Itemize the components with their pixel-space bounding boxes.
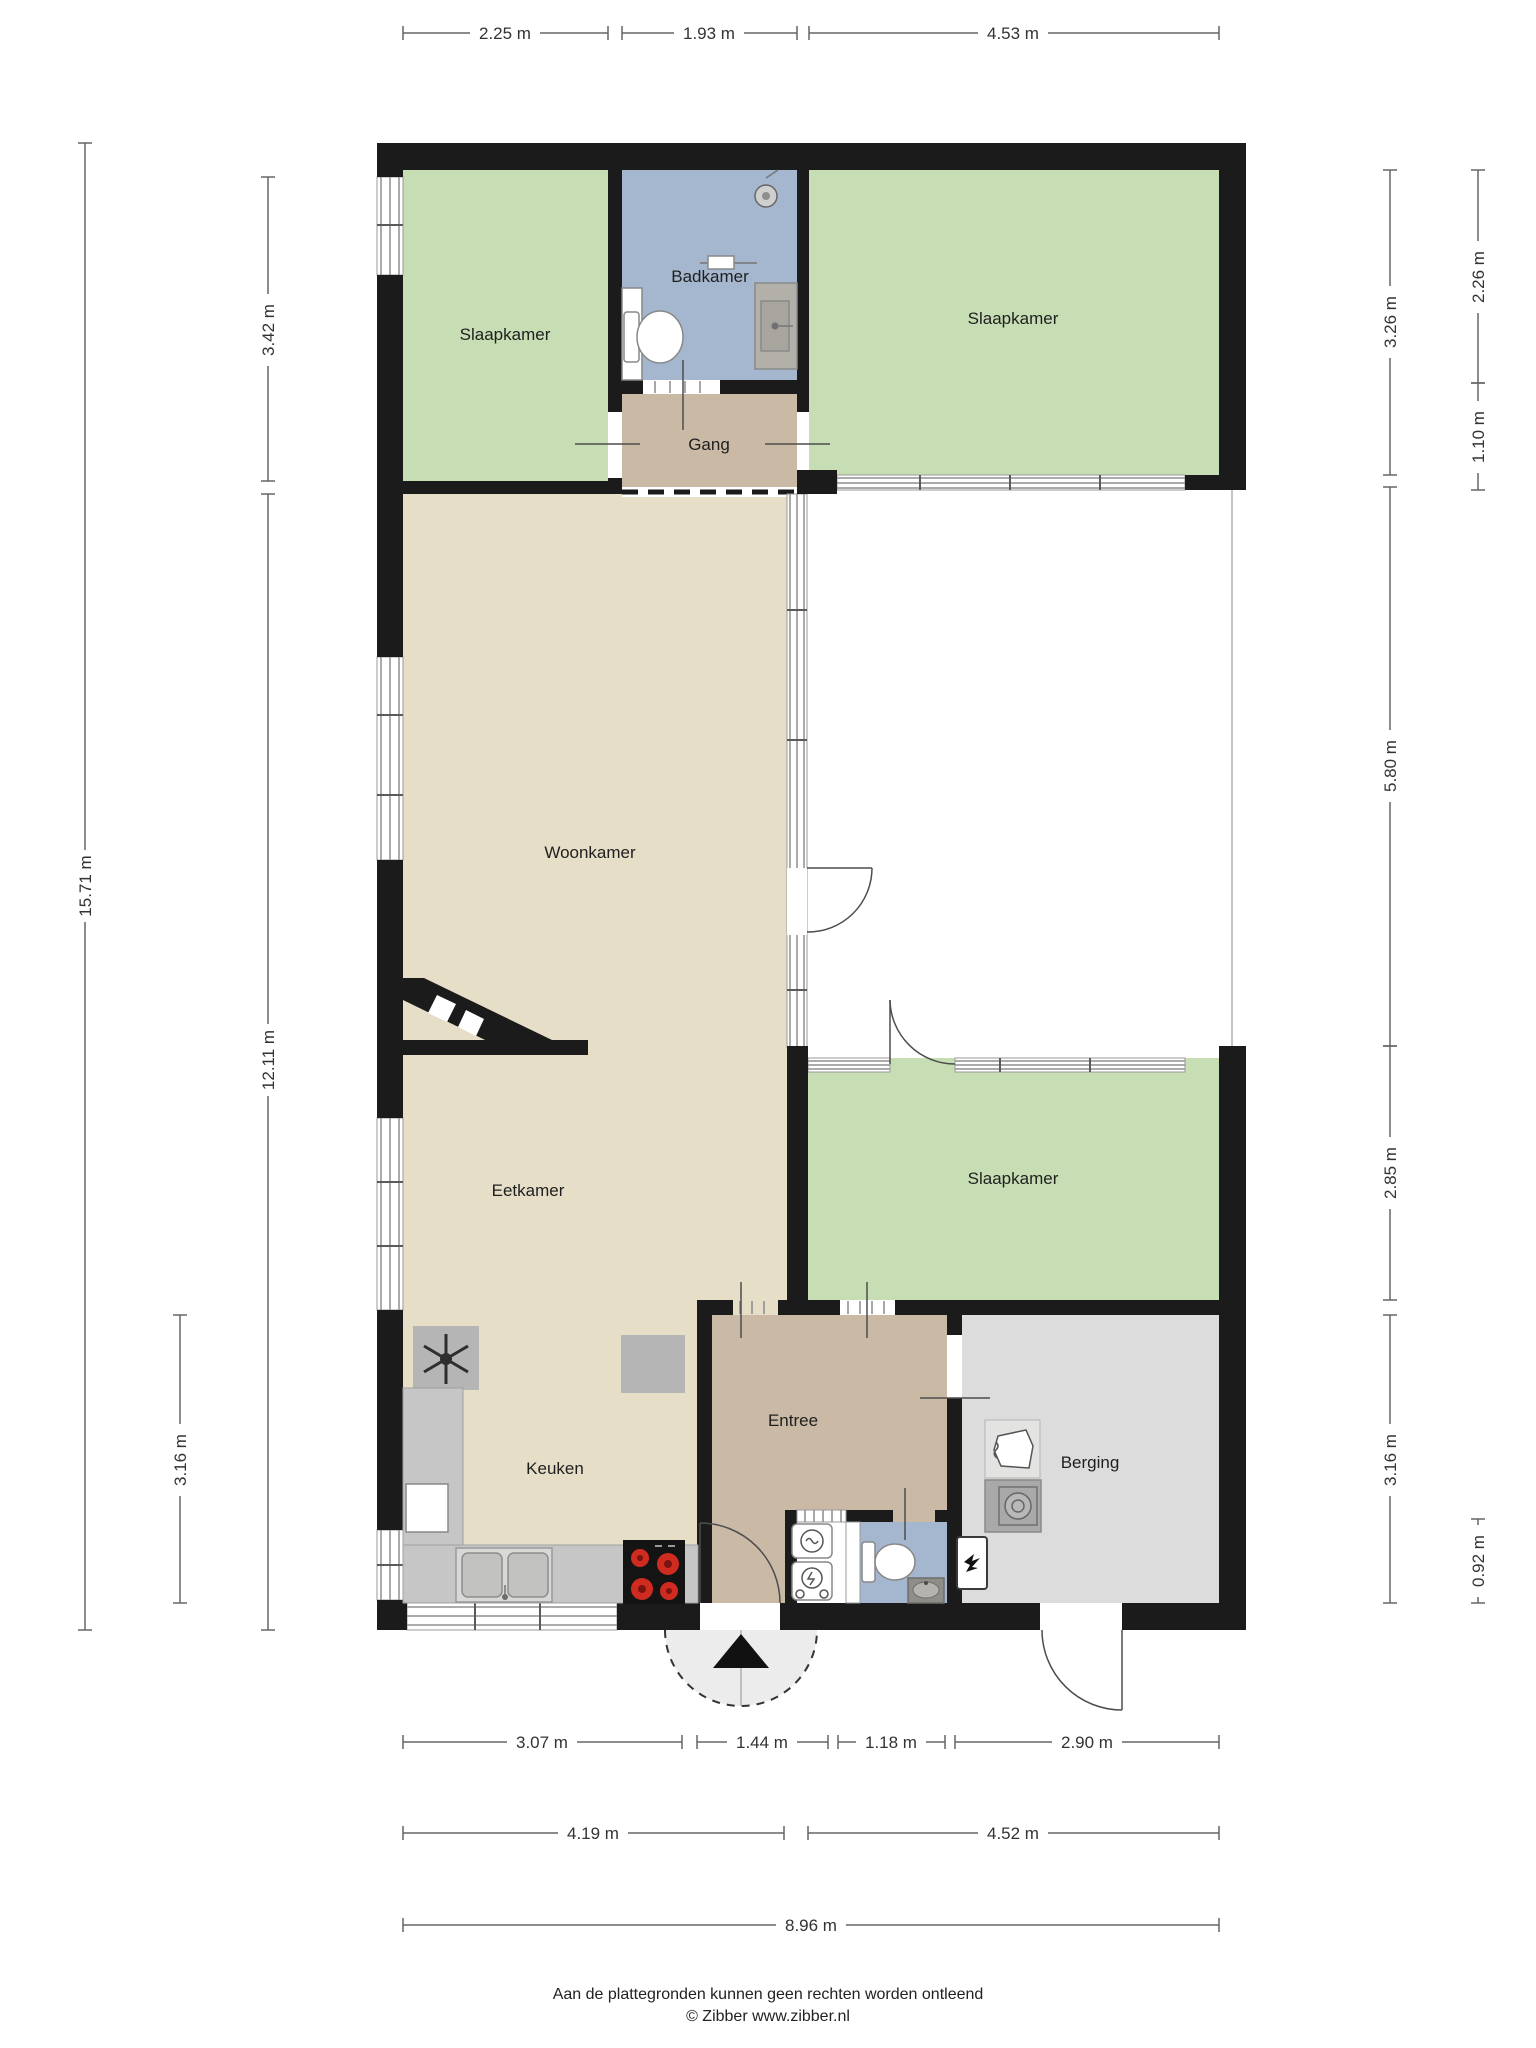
window-glass-wall bbox=[787, 494, 807, 1047]
room-label-keuken: Keuken bbox=[526, 1459, 584, 1478]
room-label-slaapkamer-tr: Slaapkamer bbox=[968, 309, 1059, 328]
wall-toilet-top-seg bbox=[935, 1510, 947, 1522]
kitchen-sink-icon bbox=[456, 1548, 552, 1602]
wall-gang-left bbox=[608, 478, 622, 494]
room-label-badkamer: Badkamer bbox=[671, 267, 749, 286]
wall-band-block bbox=[809, 475, 837, 490]
dim-label: 4.53 m bbox=[987, 24, 1039, 43]
footer: Aan de plattegronden kunnen geen rechten… bbox=[553, 1986, 984, 2025]
dim-left-3: 3.16 m bbox=[168, 1315, 192, 1603]
window-slaapkamer-br-band bbox=[808, 1058, 1185, 1072]
dim-bottom2-1: 4.52 m bbox=[808, 1822, 1219, 1844]
dim-top-0: 2.25 m bbox=[403, 22, 608, 44]
wall-outer-left-seg bbox=[377, 143, 403, 177]
slaapkamer-br-door-arc bbox=[890, 1000, 955, 1064]
footer-disclaimer: Aan de plattegronden kunnen geen rechten… bbox=[553, 1986, 984, 2003]
wall-outer-left-seg bbox=[377, 860, 403, 1118]
floorplan-page: 2.25 m 1.93 m 4.53 m 15.71 m 3.42 m bbox=[0, 0, 1536, 2048]
dim-bottom1-0: 3.07 m bbox=[403, 1731, 682, 1753]
wall-slaapkamer-tl-bottom bbox=[395, 481, 608, 494]
kitchen-appliance-icon bbox=[406, 1484, 448, 1532]
electric-meter-icon bbox=[792, 1562, 832, 1600]
wall-entree-top-seg bbox=[895, 1300, 1246, 1315]
room-label-berging: Berging bbox=[1061, 1453, 1120, 1472]
dim-label: 8.96 m bbox=[785, 1916, 837, 1935]
window-keuken-bottom bbox=[407, 1603, 617, 1630]
room-label-gang: Gang bbox=[688, 435, 730, 454]
wall-berging-left-seg bbox=[947, 1315, 962, 1335]
dim-right-outer-0: 2.26 m bbox=[1466, 170, 1490, 383]
dim-label: 2.25 m bbox=[479, 24, 531, 43]
dim-right-inner-0: 3.26 m bbox=[1378, 170, 1402, 475]
glass-wall-door-gap bbox=[787, 868, 807, 935]
cooktop-icon bbox=[623, 1540, 685, 1604]
toilet-icon bbox=[624, 311, 683, 363]
boiler-icon bbox=[957, 1537, 987, 1589]
window-eetkamer bbox=[377, 1118, 403, 1310]
wall-entree-top-seg bbox=[778, 1300, 840, 1315]
window-keuken-left bbox=[377, 1530, 403, 1600]
wall-slaapkamer-badkamer bbox=[608, 170, 622, 380]
wall-badkamer-bottom bbox=[720, 380, 809, 394]
meterkast-fixtures bbox=[792, 1524, 832, 1600]
dim-label: 1.93 m bbox=[683, 24, 735, 43]
dim-label: 5.80 m bbox=[1381, 740, 1400, 792]
meterkast-louvre-door bbox=[797, 1510, 846, 1522]
wall-outer-bottom-seg bbox=[617, 1603, 700, 1630]
dim-label: 3.16 m bbox=[1381, 1434, 1400, 1486]
dim-label: 2.85 m bbox=[1381, 1147, 1400, 1199]
wall-toilet-top-seg bbox=[846, 1510, 893, 1522]
room-label-woonkamer: Woonkamer bbox=[544, 843, 636, 862]
dim-label: 1.44 m bbox=[736, 1733, 788, 1752]
entrance-marker bbox=[665, 1630, 817, 1706]
wall-badkamer-slaapkamer bbox=[797, 170, 809, 380]
dim-label: 1.18 m bbox=[865, 1733, 917, 1752]
room-label-eetkamer: Eetkamer bbox=[492, 1181, 565, 1200]
dim-right-inner-1: 5.80 m bbox=[1378, 487, 1402, 1046]
wall-badkamer-bottom bbox=[608, 380, 643, 394]
wall-eetkamer-slaapkamer bbox=[787, 1046, 808, 1315]
gang-open-boundary bbox=[622, 487, 797, 497]
dim-label: 1.10 m bbox=[1469, 411, 1488, 463]
wall-gang-right bbox=[797, 394, 809, 412]
window-slaapkamer-tr-band bbox=[837, 475, 1185, 490]
room-label-slaapkamer-br: Slaapkamer bbox=[968, 1169, 1059, 1188]
kitchen-cabinet-block bbox=[621, 1335, 685, 1393]
dim-label: 2.90 m bbox=[1061, 1733, 1113, 1752]
dim-left-2: 12.11 m bbox=[256, 494, 280, 1630]
dim-label: 3.16 m bbox=[171, 1434, 190, 1486]
window-woonkamer bbox=[377, 657, 403, 860]
washing-machine-icon bbox=[985, 1480, 1041, 1532]
floorplan-canvas: 2.25 m 1.93 m 4.53 m 15.71 m 3.42 m bbox=[0, 0, 1536, 2048]
dim-label: 12.11 m bbox=[259, 1030, 278, 1090]
wall-band-block bbox=[1185, 475, 1219, 490]
dim-right-inner-2: 2.85 m bbox=[1378, 1046, 1402, 1300]
toilet-icon bbox=[862, 1542, 915, 1582]
wall-outer-bottom-seg bbox=[377, 1603, 407, 1630]
wall-outer-left-seg bbox=[377, 275, 403, 657]
dim-bottom3-0: 8.96 m bbox=[403, 1914, 1219, 1936]
dim-bottom1-3: 2.90 m bbox=[955, 1731, 1219, 1753]
wall-outer-right-seg bbox=[1219, 143, 1246, 490]
dim-label: 3.07 m bbox=[516, 1733, 568, 1752]
berging-exterior-door-arc bbox=[1042, 1630, 1122, 1710]
laundry-basket-icon bbox=[985, 1420, 1040, 1478]
dim-right-inner-3: 3.16 m bbox=[1378, 1315, 1402, 1603]
wall-outer-top bbox=[377, 143, 1246, 170]
dim-label: 0.92 m bbox=[1469, 1535, 1488, 1587]
dim-label: 3.42 m bbox=[259, 304, 278, 356]
window-slaapkamer-tl bbox=[377, 177, 403, 275]
wall-entree-top-seg bbox=[697, 1300, 733, 1315]
room-label-slaapkamer-tl: Slaapkamer bbox=[460, 325, 551, 344]
wall-woonkamer-eetkamer-stub bbox=[403, 1040, 588, 1055]
water-meter-icon bbox=[792, 1524, 832, 1558]
room-label-entree: Entree bbox=[768, 1411, 818, 1430]
dim-bottom1-2: 1.18 m bbox=[838, 1731, 945, 1753]
dim-label: 3.26 m bbox=[1381, 296, 1400, 348]
wall-gang-left bbox=[608, 394, 622, 412]
wall-meterkast-toilet-divider bbox=[846, 1522, 860, 1603]
wall-outer-bottom-seg bbox=[780, 1603, 1040, 1630]
footer-credit: © Zibber www.zibber.nl bbox=[686, 2008, 850, 2025]
dim-top-1: 1.93 m bbox=[622, 22, 797, 44]
dim-top-2: 4.53 m bbox=[809, 22, 1219, 44]
dim-right-outer-1: 1.10 m bbox=[1466, 383, 1490, 490]
dim-bottom1-1: 1.44 m bbox=[697, 1731, 828, 1753]
wall-outer-left-seg bbox=[377, 1310, 403, 1530]
small-sink-icon bbox=[908, 1578, 944, 1603]
terrace-door-arc bbox=[807, 868, 872, 932]
wall-outer-right-seg bbox=[1219, 1046, 1246, 1630]
dim-label: 15.71 m bbox=[76, 855, 95, 916]
dim-label: 4.52 m bbox=[987, 1824, 1039, 1843]
dim-right-outer-2: 0.92 m bbox=[1466, 1519, 1490, 1603]
dim-label: 4.19 m bbox=[567, 1824, 619, 1843]
bathroom-sink-icon bbox=[755, 283, 797, 369]
room-fills bbox=[403, 170, 1219, 1603]
dim-label: 2.26 m bbox=[1469, 251, 1488, 303]
dim-bottom2-0: 4.19 m bbox=[403, 1822, 784, 1844]
dim-left-1: 3.42 m bbox=[256, 177, 280, 481]
dim-left-0: 15.71 m bbox=[73, 143, 97, 1630]
